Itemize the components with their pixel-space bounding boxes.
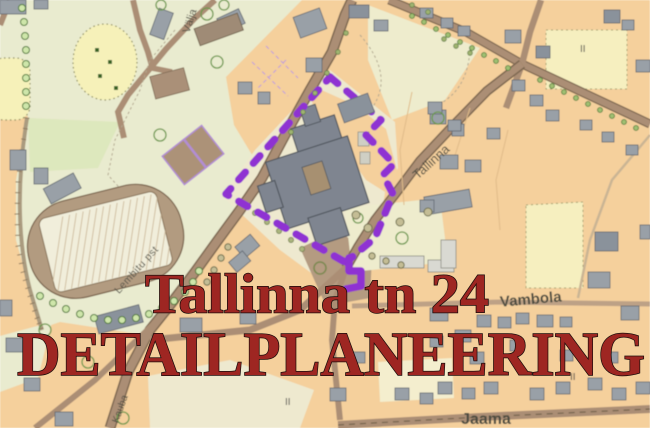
- svg-text:DETAILPLANEERING: DETAILPLANEERING: [17, 321, 645, 389]
- svg-text:II: II: [580, 44, 586, 55]
- svg-text:Jaama: Jaama: [461, 411, 511, 428]
- svg-text:Tallinna tn 24: Tallinna tn 24: [145, 264, 489, 326]
- svg-text:II: II: [285, 397, 291, 408]
